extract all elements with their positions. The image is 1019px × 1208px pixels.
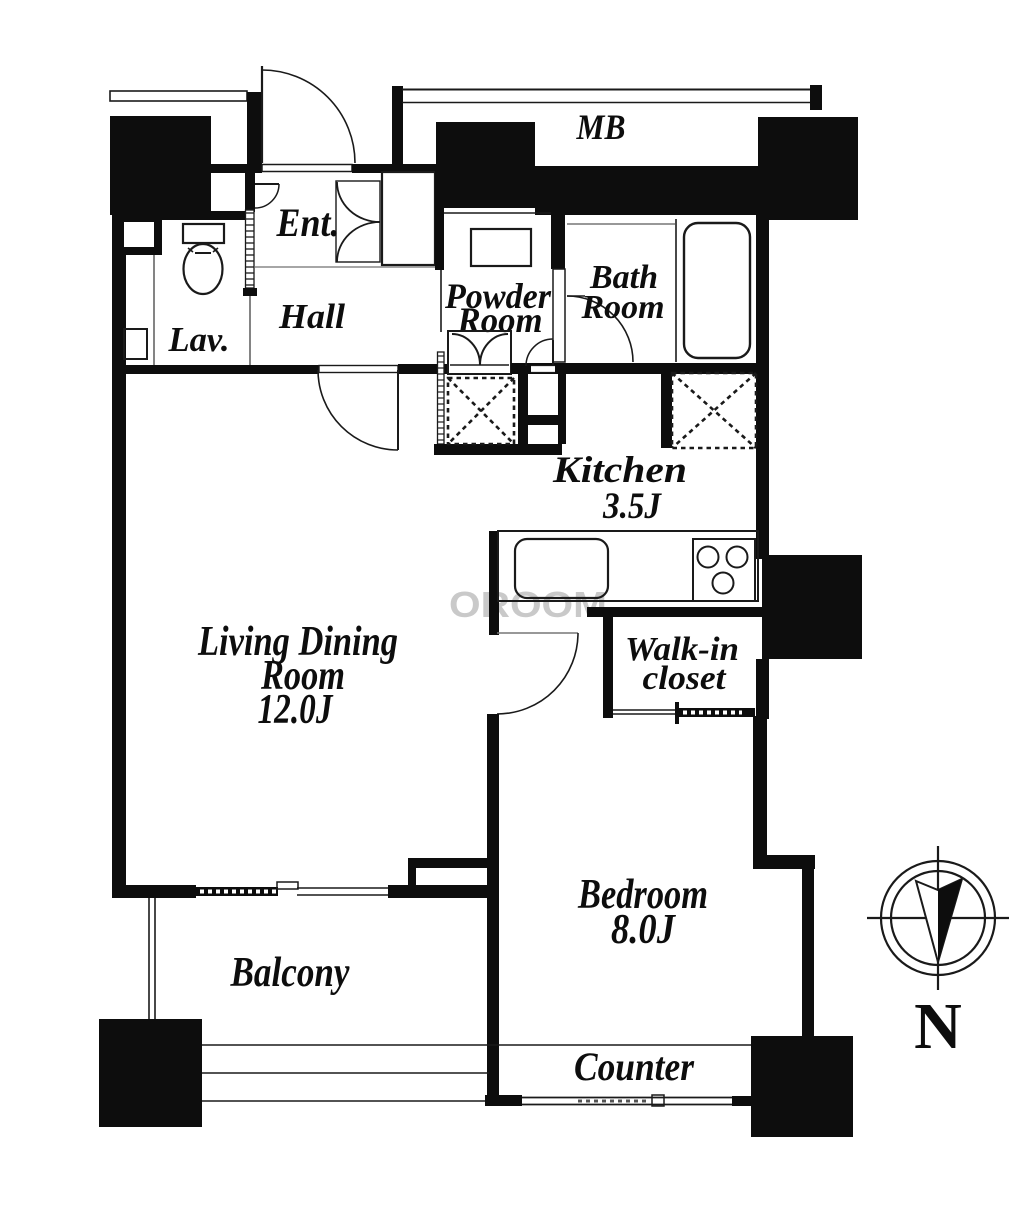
svg-text:Kitchen: Kitchen — [552, 450, 687, 491]
svg-text:3.5J: 3.5J — [602, 486, 662, 527]
svg-text:Hall: Hall — [278, 297, 345, 336]
svg-text:Room: Room — [457, 300, 543, 340]
svg-text:Lav.: Lav. — [168, 320, 230, 359]
svg-text:Counter: Counter — [574, 1044, 694, 1089]
svg-text:Room: Room — [581, 289, 665, 326]
svg-text:closet: closet — [643, 660, 728, 697]
svg-text:Ent.: Ent. — [276, 200, 340, 245]
svg-text:Balcony: Balcony — [230, 950, 350, 996]
svg-text:12.0J: 12.0J — [258, 687, 335, 733]
svg-text:OROOM: OROOM — [449, 584, 607, 625]
svg-text:MB: MB — [576, 107, 626, 147]
svg-text:N: N — [914, 990, 962, 1063]
svg-text:8.0J: 8.0J — [611, 907, 677, 953]
